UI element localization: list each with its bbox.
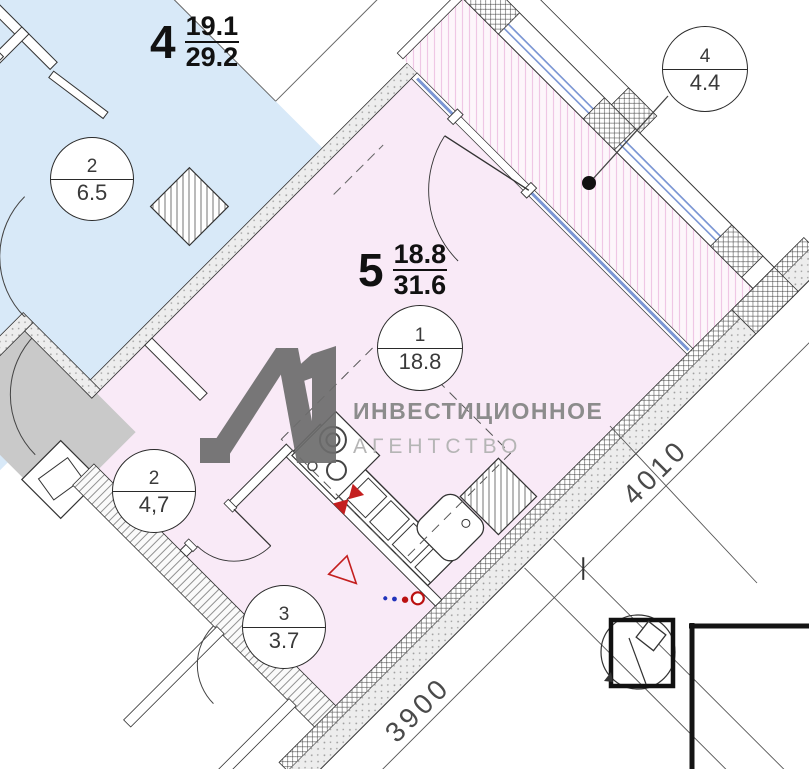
- watermark-line2: АГЕНТСТВО: [353, 435, 522, 459]
- extension-line: [525, 568, 809, 769]
- building-corner-outline: [689, 623, 809, 769]
- flat5-number: 5: [358, 247, 384, 293]
- flat4-number: 4: [150, 19, 176, 65]
- badge-living-room: 1 18.8: [377, 305, 463, 391]
- badge-blue-room: 2 6.5: [50, 137, 134, 221]
- floor-plan-canvas: 4010 3900: [0, 0, 809, 769]
- flat4-label: 4 19.1 29.2: [150, 12, 239, 72]
- badge-hallway: 2 4,7: [112, 449, 196, 533]
- logo-one-bar: [312, 346, 336, 463]
- flat4-areas: 19.1 29.2: [185, 12, 240, 72]
- logo-a-foot: [200, 438, 230, 463]
- neighbor-wall: [167, 699, 296, 769]
- neighbor-wall: [124, 627, 224, 727]
- flat5-areas: 18.8 31.6: [393, 240, 448, 300]
- flat5-total-area: 31.6: [394, 271, 447, 299]
- watermark-logo: [200, 328, 350, 469]
- badge-bathroom: 3 3.7: [242, 585, 326, 669]
- leader-dot: [582, 176, 596, 190]
- flat4-total-area: 29.2: [186, 43, 239, 71]
- badge-balcony: 4 4.4: [662, 26, 748, 112]
- watermark-line1: ИНВЕСТИЦИОННОЕ: [353, 398, 603, 425]
- flat5-label: 5 18.8 31.6: [358, 240, 447, 300]
- flat5-living-area: 18.8: [393, 240, 448, 271]
- flat4-living-area: 19.1: [185, 12, 240, 43]
- extension-line: [554, 539, 809, 769]
- legend-line: [629, 638, 646, 684]
